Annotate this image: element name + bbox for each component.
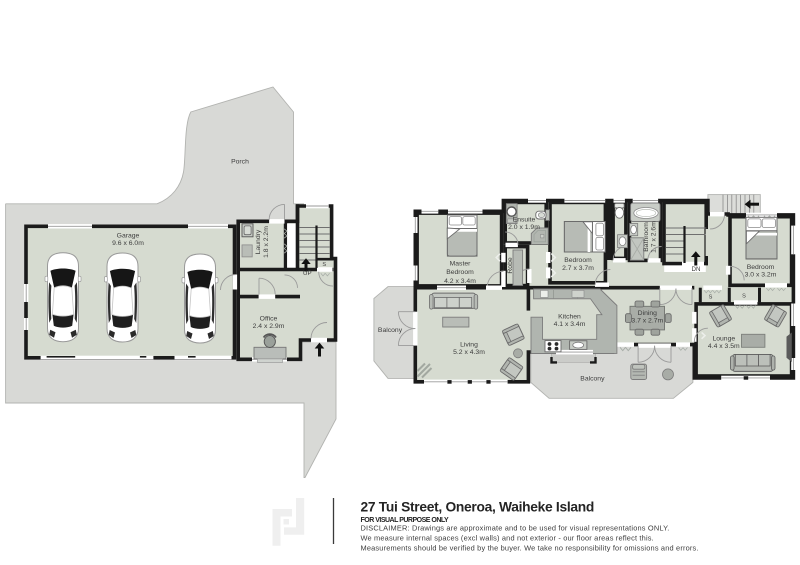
svg-text:2.4 x 2.9m: 2.4 x 2.9m xyxy=(253,323,285,330)
svg-text:Garage: Garage xyxy=(117,233,140,240)
svg-text:2.0 x 1.9m: 2.0 x 1.9m xyxy=(508,224,540,231)
svg-text:We measure internal spaces (ex: We measure internal spaces (excl walls) … xyxy=(361,533,654,542)
svg-text:5.2 x 4.3m: 5.2 x 4.3m xyxy=(453,349,485,356)
svg-text:4.4 x 3.5m: 4.4 x 3.5m xyxy=(708,343,740,350)
svg-text:UP: UP xyxy=(303,270,312,277)
svg-text:Dining: Dining xyxy=(638,310,657,317)
svg-text:Bedroom: Bedroom xyxy=(564,257,592,264)
svg-text:DISCLAIMER: Drawings are appr: DISCLAIMER: Drawings are approximate and… xyxy=(361,523,670,532)
svg-text:S: S xyxy=(322,262,326,268)
svg-text:Master: Master xyxy=(450,261,472,268)
svg-text:S: S xyxy=(709,295,713,301)
svg-text:1.8 x 2.2m: 1.8 x 2.2m xyxy=(263,226,270,258)
svg-text:Bedroom: Bedroom xyxy=(747,264,775,271)
svg-text:Office: Office xyxy=(260,315,278,322)
svg-text:Balcony: Balcony xyxy=(378,327,403,334)
svg-text:Robe: Robe xyxy=(507,257,514,273)
svg-text:Kitchen: Kitchen xyxy=(558,314,581,321)
svg-text:Lounge: Lounge xyxy=(712,335,735,342)
svg-text:1.7 x 2.6m: 1.7 x 2.6m xyxy=(651,221,658,253)
svg-text:Measurements should be verifie: Measurements should be verified by the b… xyxy=(361,543,699,552)
svg-text:Laundry: Laundry xyxy=(255,229,262,254)
svg-text:Living: Living xyxy=(460,341,478,348)
svg-text:Ensuite: Ensuite xyxy=(513,217,536,224)
svg-text:Porch: Porch xyxy=(231,159,249,166)
svg-text:Bedroom: Bedroom xyxy=(446,269,474,276)
svg-text:S: S xyxy=(742,294,746,300)
svg-text:4.1 x 3.4m: 4.1 x 3.4m xyxy=(554,321,586,328)
svg-text:2.7 x 3.7m: 2.7 x 3.7m xyxy=(562,265,594,272)
svg-text:Bathroom: Bathroom xyxy=(643,222,650,252)
svg-text:3.0 x 3.2m: 3.0 x 3.2m xyxy=(745,272,777,279)
svg-text:DN: DN xyxy=(692,266,701,273)
svg-text:9.6 x 6.0m: 9.6 x 6.0m xyxy=(112,240,144,247)
svg-text:Balcony: Balcony xyxy=(580,376,605,383)
svg-text:3.7 x 2.7m: 3.7 x 2.7m xyxy=(631,318,663,325)
svg-text:4.2 x 3.4m: 4.2 x 3.4m xyxy=(444,278,476,285)
svg-text:27 Tui Street, Oneroa, Waiheke: 27 Tui Street, Oneroa, Waiheke Island xyxy=(361,499,595,514)
